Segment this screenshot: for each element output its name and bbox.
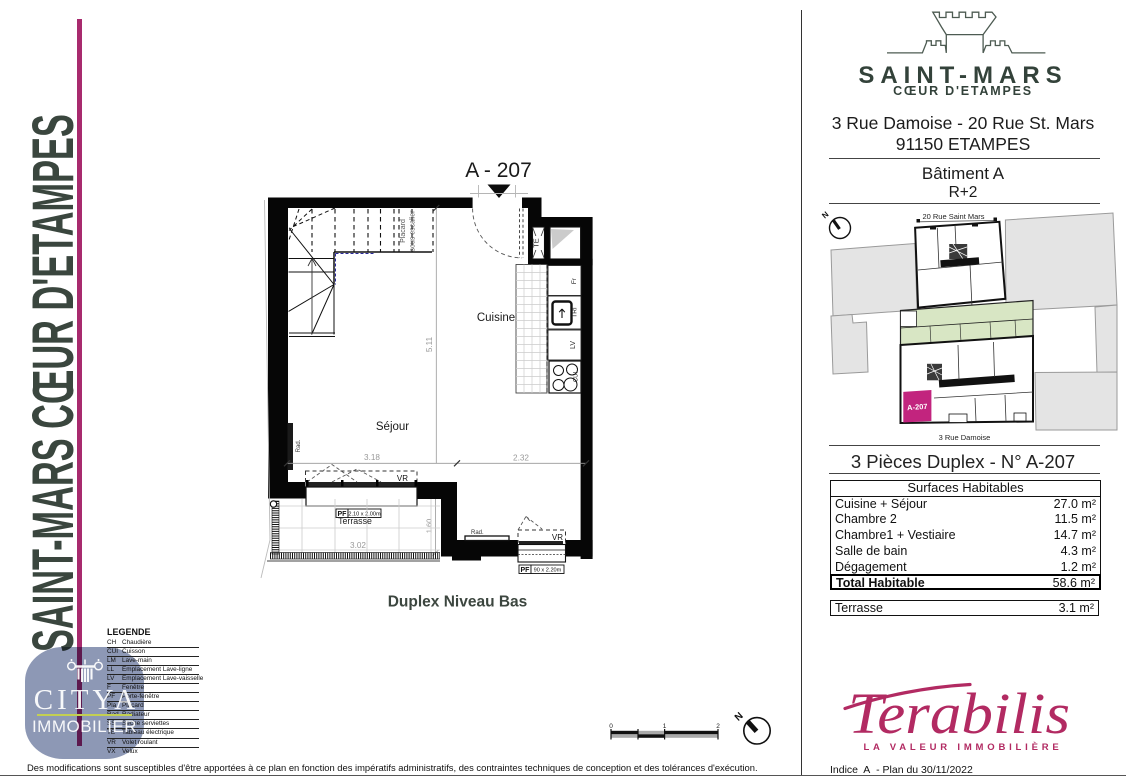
svg-text:3 Rue Damoise: 3 Rue Damoise [939,433,991,442]
svg-text:sous escalier: sous escalier [410,210,417,252]
svg-text:Fr: Fr [571,277,578,284]
svg-text:VR: VR [552,533,563,542]
svg-text:CUI: CUI [574,372,580,383]
svg-text:Duplex Niveau Bas: Duplex Niveau Bas [388,594,528,611]
svg-text:N: N [733,711,746,724]
svg-text:Terrasse: Terrasse [338,516,372,526]
svg-text:Terabilis: Terabilis [848,681,1070,746]
svg-text:20 Rue Saint Mars: 20 Rue Saint Mars [922,212,984,221]
svg-text:2.32: 2.32 [513,454,529,463]
svg-text:TE: TE [532,238,541,248]
svg-text:0: 0 [609,723,613,730]
svg-text:5.11: 5.11 [425,336,434,352]
svg-text:Placard: Placard [400,219,407,243]
svg-text:Cuisine: Cuisine [477,312,515,324]
svg-text:90 x 2.20m: 90 x 2.20m [534,567,562,573]
svg-text:3.18: 3.18 [364,453,380,462]
svg-text:1.60: 1.60 [425,519,434,533]
svg-text:Rad.: Rad. [471,530,484,536]
svg-text:1: 1 [663,723,667,730]
svg-text:2: 2 [716,723,720,730]
svg-text:VR: VR [397,474,408,483]
svg-text:A-207: A-207 [907,402,928,412]
svg-text:LV: LV [570,341,577,349]
svg-text:3.02: 3.02 [350,541,366,550]
svg-text:LA VALEUR IMMOBILIÈRE: LA VALEUR IMMOBILIÈRE [863,742,1062,753]
svg-text:N: N [820,210,830,221]
svg-text:PF: PF [521,567,531,574]
svg-text:Séjour: Séjour [376,421,409,433]
svg-text:A - 207: A - 207 [465,159,532,182]
svg-text:TRI: TRI [572,307,579,318]
svg-text:Rad.: Rad. [296,439,302,452]
